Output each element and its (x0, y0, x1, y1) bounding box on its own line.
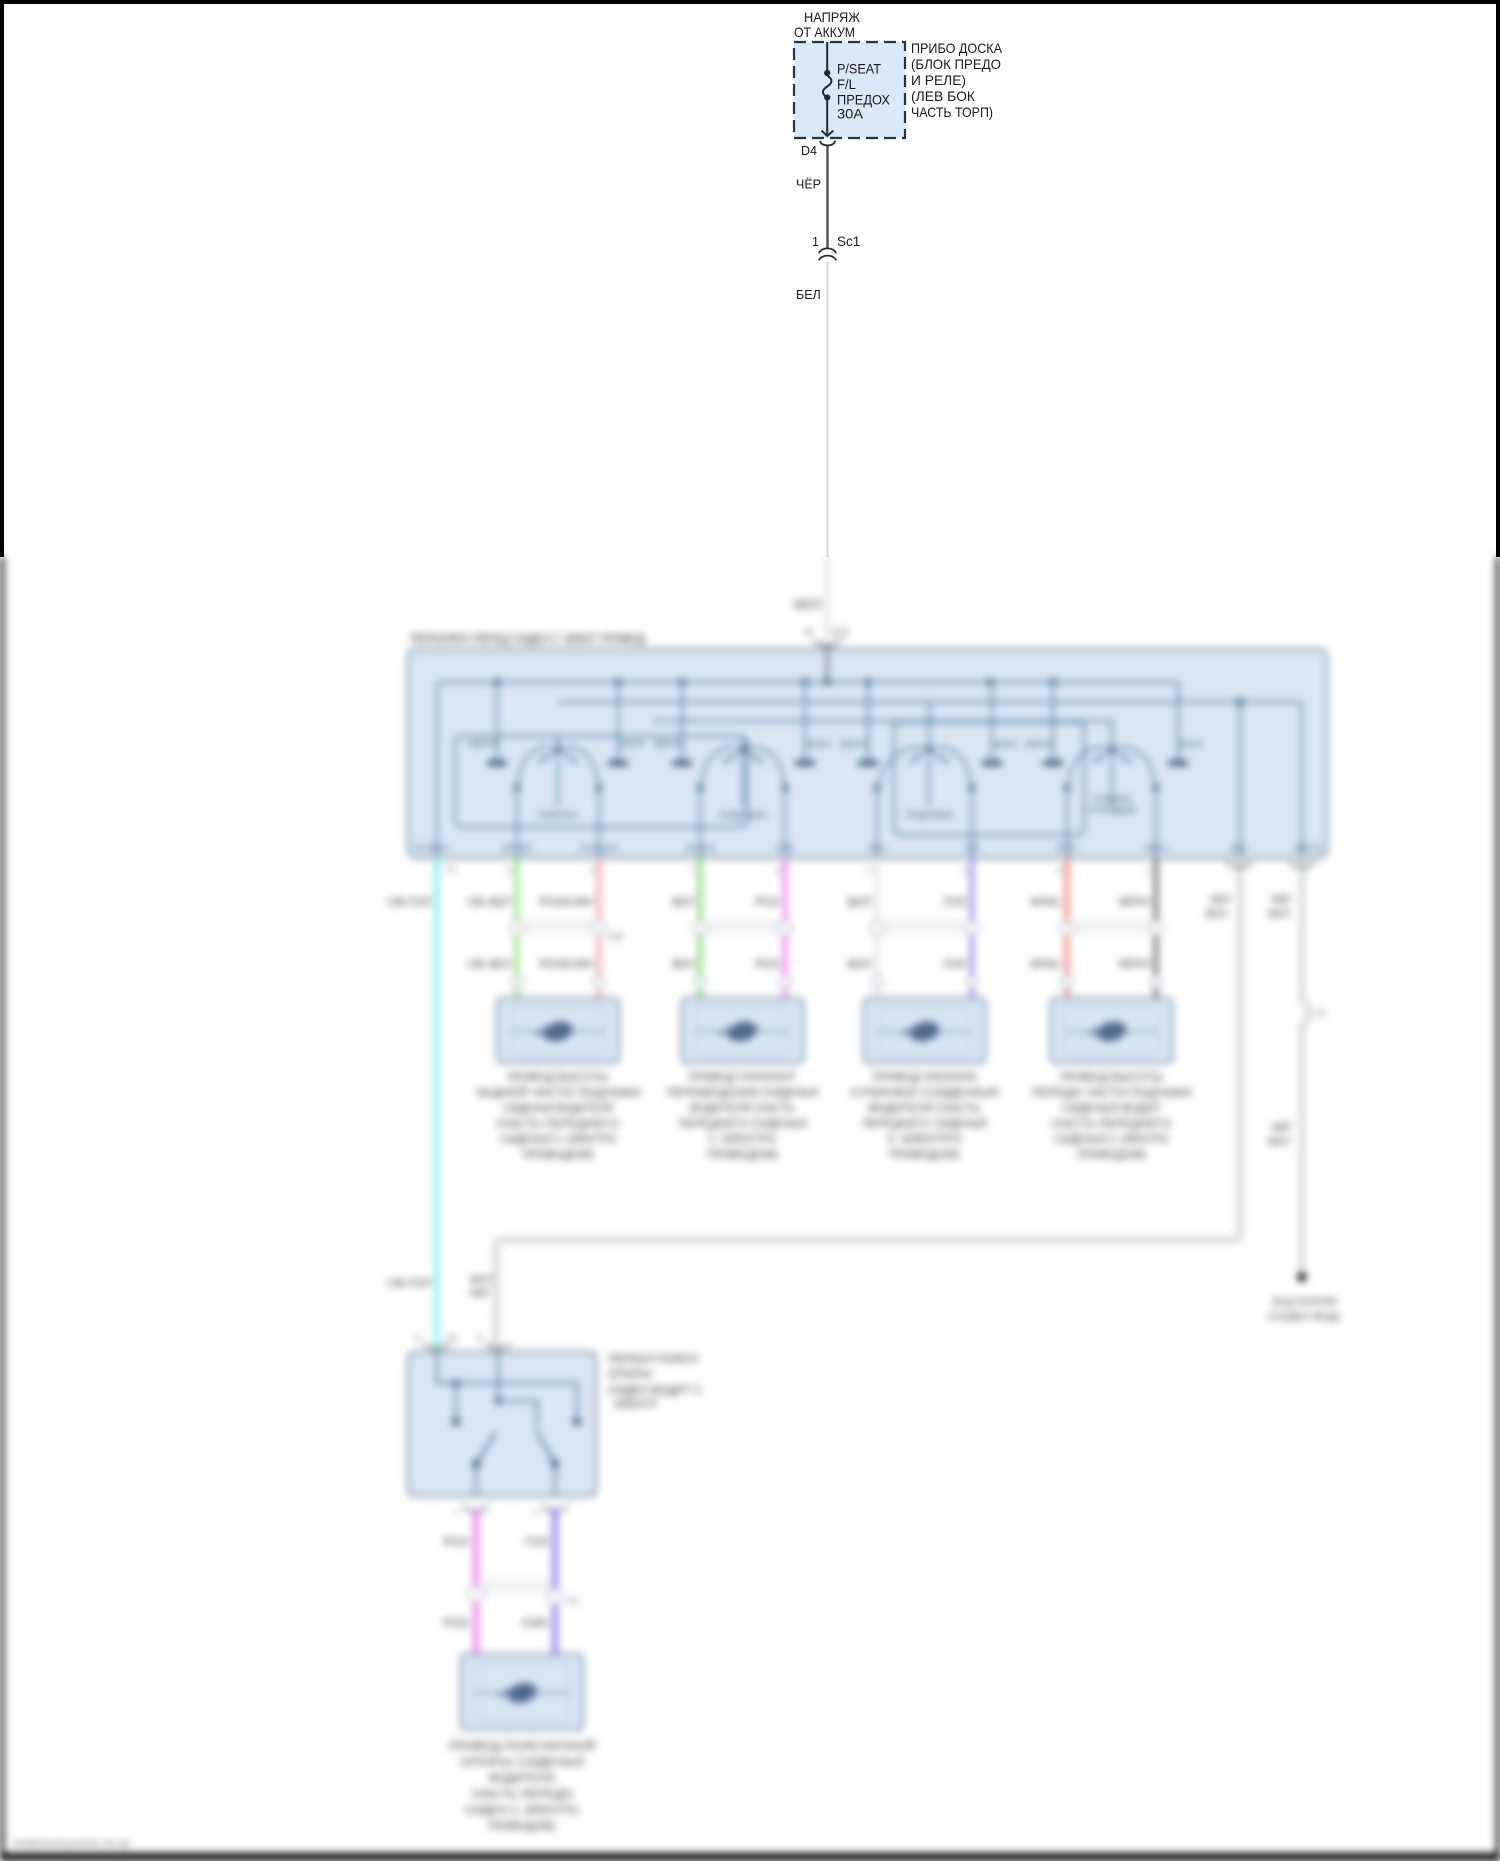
svg-text:НАКЛОН: НАКЛОН (538, 810, 577, 821)
svg-text:C1: C1 (568, 1596, 580, 1606)
svg-text:СВ-ГОЛ: СВ-ГОЛ (387, 895, 431, 909)
svg-text:ПОДУШКА: ПОДУШКА (719, 810, 767, 821)
svg-text:4: 4 (805, 625, 812, 639)
svg-text:ПРИВОДОМ): ПРИВОДОМ) (707, 1150, 778, 1162)
svg-text:F/L: F/L (837, 76, 856, 92)
svg-text:ЧЁР: ЧЁР (796, 178, 821, 192)
svg-text:ПОДУШКА: ПОДУШКА (905, 810, 953, 821)
svg-text:РОЗ/СИН: РОЗ/СИН (539, 957, 593, 971)
svg-text:ПРИВОД ПОЯСНИЧНОЙ: ПРИВОД ПОЯСНИЧНОЙ (449, 1740, 596, 1753)
svg-text:ОПОРЫ СИДЕНЬЯ: ОПОРЫ СИДЕНЬЯ (460, 1757, 584, 1769)
svg-text:1: 1 (1147, 867, 1152, 876)
svg-text:ВОДИТЕЛЯ (ЧАСТЬ: ВОДИТЕЛЯ (ЧАСТЬ (690, 1103, 795, 1115)
svg-text:ЧАСТЬ ТОРП): ЧАСТЬ ТОРП) (911, 104, 993, 120)
svg-text:БЕЛ: БЕЛ (470, 1274, 492, 1286)
svg-text:РОЗ: РОЗ (755, 957, 779, 971)
svg-text:КРАС: КРАС (1056, 843, 1078, 853)
svg-text:ПЕРЕДН ЧАСТИ ПОДУШКИ: ПЕРЕДН ЧАСТИ ПОДУШКИ (1032, 1088, 1192, 1100)
svg-text:ПРИВОД ВЫСОТЫ: ПРИВОД ВЫСОТЫ (508, 1072, 609, 1084)
svg-text:3: 3 (534, 1508, 539, 1517)
svg-text:(ЧАСТЬ ПЕРЕДНЕГО: (ЧАСТЬ ПЕРЕДНЕГО (1052, 1119, 1172, 1131)
svg-text:ГОЛ: ГОЛ (943, 957, 966, 971)
svg-text:БЕЛ: БЕЛ (1205, 908, 1227, 920)
svg-text:ВОДИТЕЛЯ (ЧАСТЬ: ВОДИТЕЛЯ (ЧАСТЬ (869, 1103, 981, 1115)
svg-text:8: 8 (508, 867, 513, 876)
svg-text:ВНИЗ: ВНИЗ (807, 739, 830, 749)
svg-text:ЧЁРН: ЧЁРН (1144, 843, 1167, 853)
svg-text:ПЕРЕКЛЮЧ ПЕРЕД СИДЕН С ЭЛЕКТ П: ПЕРЕКЛЮЧ ПЕРЕД СИДЕН С ЭЛЕКТ ПРИВОД (410, 631, 645, 646)
svg-text:troubleshootmyvehicle.com д5: troubleshootmyvehicle.com д5 (12, 1838, 130, 1850)
svg-text:C2: C2 (414, 843, 425, 853)
svg-text:РОЗ/СИН: РОЗ/СИН (580, 843, 618, 853)
svg-text:ВВЕРХ: ВВЕРХ (840, 739, 868, 749)
svg-text:ВВЕРХ: ВВЕРХ (1025, 739, 1053, 749)
svg-text:СПИНКА: СПИНКА (1092, 794, 1132, 805)
svg-text:СВ-ГОЛ: СВ-ГОЛ (387, 1276, 431, 1290)
svg-text:ПРИБО ДОСКА: ПРИБО ДОСКА (911, 40, 1003, 56)
svg-text:СИДЕНЬЯ ВОДИТ: СИДЕНЬЯ ВОДИТ (1062, 1103, 1162, 1115)
svg-text:ОПОРЫ: ОПОРЫ (608, 1369, 652, 1381)
svg-text:ЗЕЛ: ЗЕЛ (671, 957, 694, 971)
svg-text:30A: 30A (837, 106, 864, 122)
svg-text:5: 5 (868, 867, 873, 876)
svg-text:ПРИВОД ГОРИЗОНТ: ПРИВОД ГОРИЗОНТ (689, 1072, 797, 1084)
svg-text:РОЗ: РОЗ (776, 843, 793, 853)
svg-text:ПЕРЕДНЕГО СИДЕНЬЯ: ПЕРЕДНЕГО СИДЕНЬЯ (862, 1119, 987, 1131)
svg-text:БЕЛ: БЕЛ (796, 288, 821, 302)
svg-text:ЧЁР: ЧЁР (1270, 894, 1292, 906)
svg-text:СВ-ЗЕЛ: СВ-ЗЕЛ (467, 957, 511, 971)
svg-text:ГОЛ: ГОЛ (964, 843, 980, 853)
svg-text:РОЗ: РОЗ (755, 895, 779, 909)
svg-text:C2: C2 (1312, 843, 1323, 853)
svg-text:БЕЛ: БЕЛ (847, 957, 871, 971)
svg-text:СВ-ЗЕЛ: СВ-ЗЕЛ (501, 843, 532, 853)
svg-text:(СИДЕН ВОД): (СИДЕН ВОД) (1268, 1311, 1340, 1323)
svg-text:1: 1 (455, 1508, 460, 1517)
svg-text:Sc1: Sc1 (837, 234, 860, 249)
svg-text:ПЕРЕКЛ ПОЯСН: ПЕРЕКЛ ПОЯСН (608, 1354, 699, 1366)
svg-text:1: 1 (812, 235, 819, 249)
svg-text:БЕЛ: БЕЛ (1268, 1136, 1290, 1148)
svg-text:БЕЛ: БЕЛ (794, 597, 821, 612)
svg-text:РОЗ/СИН: РОЗ/СИН (539, 895, 593, 909)
svg-text:ЧЁР: ЧЁР (1293, 843, 1310, 853)
svg-text:ПРИВОД ВЫСОТЫ: ПРИВОД ВЫСОТЫ (1060, 1072, 1163, 1084)
svg-text:C1: C1 (833, 625, 849, 639)
svg-text:C2: C2 (446, 865, 457, 874)
svg-text:СИДЕНЬЯ ВОДИТЕЛЯ: СИДЕНЬЯ ВОДИТЕЛЯ (503, 1103, 613, 1115)
svg-text:ВОДИТЕЛЯ: ВОДИТЕЛЯ (489, 1773, 555, 1785)
svg-text:С ЭЛЕКТРО: С ЭЛЕКТРО (887, 1134, 962, 1146)
svg-text:ПРИВОДОМ): ПРИВОДОМ) (1077, 1150, 1146, 1162)
svg-text:СИДЕНЬЯ С ЭЛЕКТРО: СИДЕНЬЯ С ЭЛЕКТРО (1054, 1134, 1169, 1146)
svg-text:ПЕРЕМЕЩЕНИЯ СИДЕНЬЯ: ПЕРЕМЕЩЕНИЯ СИДЕНЬЯ (667, 1088, 819, 1100)
svg-text:ЗАД ЗАЖИМ: ЗАД ЗАЖИМ (1271, 1296, 1337, 1308)
svg-text:ПРИВОДОМ): ПРИВОДОМ) (523, 1150, 594, 1162)
svg-text:4: 4 (963, 867, 968, 876)
svg-text:4: 4 (476, 1333, 481, 1343)
svg-text:НАПРЯЖ: НАПРЯЖ (804, 9, 860, 25)
svg-text:ВНИЗ: ВНИЗ (620, 739, 643, 749)
svg-text:ЧЁР: ЧЁР (1209, 894, 1231, 906)
svg-text:ЗАДНЕЙ ЧАСТИ ПОДУШКИ: ЗАДНЕЙ ЧАСТИ ПОДУШКИ (476, 1087, 641, 1100)
svg-text:(ЛЕВ БОК: (ЛЕВ БОК (911, 88, 976, 104)
svg-text:ЗЕЛ: ЗЕЛ (671, 895, 694, 909)
svg-text:СИН: СИН (522, 1616, 548, 1630)
svg-text:ЧЁР: ЧЁР (468, 1288, 490, 1300)
svg-text:РОЗ: РОЗ (444, 1616, 468, 1630)
svg-text:ПРИВОДОМ): ПРИВОДОМ) (489, 1821, 556, 1833)
svg-text:ПРИВОДОМ): ПРИВОДОМ) (890, 1150, 960, 1162)
svg-text:ЧЁРН: ЧЁРН (425, 843, 448, 853)
svg-text:СИДЕНЬЯ С ЭЛЕКТРО: СИДЕНЬЯ С ЭЛЕКТРО (500, 1134, 617, 1146)
svg-text:ОТКИДЫВ: ОТКИДЫВ (1089, 805, 1136, 816)
svg-text:P/SEAT: P/SEAT (837, 61, 881, 77)
svg-text:ВНИЗ: ВНИЗ (1180, 739, 1203, 749)
svg-text:КРАС: КРАС (1030, 957, 1061, 971)
svg-text:СИДЕН С ЭЛЕКТРО: СИДЕН С ЭЛЕКТРО (465, 1805, 579, 1817)
svg-text:C2: C2 (1315, 1008, 1327, 1018)
svg-text:ЧЁРН: ЧЁРН (1117, 957, 1150, 971)
svg-text:ВВЕРХ: ВВЕРХ (654, 739, 682, 749)
svg-text:ПРИВОД НАКЛОНА: ПРИВОД НАКЛОНА (872, 1072, 977, 1084)
svg-text:ГОЛ: ГОЛ (525, 1535, 548, 1549)
svg-text:ОТ АККУМ: ОТ АККУМ (794, 24, 855, 40)
svg-text:(БЛОК ПРЕДО: (БЛОК ПРЕДО (911, 56, 1001, 72)
svg-text:3: 3 (590, 867, 595, 876)
svg-text:ВВЕРХ: ВВЕРХ (469, 739, 497, 749)
svg-text:D4: D4 (801, 144, 817, 158)
svg-text:БЕЛ: БЕЛ (1231, 843, 1248, 853)
svg-text:БЕЛ: БЕЛ (869, 843, 886, 853)
svg-text:9: 9 (1058, 867, 1063, 876)
svg-text:6: 6 (415, 1333, 420, 1343)
svg-text:СИДЕН ВОДИТ С: СИДЕН ВОДИТ С (608, 1385, 702, 1397)
svg-text:ЧЁРН: ЧЁРН (1117, 895, 1150, 909)
svg-text:РОЗ: РОЗ (444, 1535, 468, 1549)
svg-text:СВ-ЗЕЛ: СВ-ЗЕЛ (467, 895, 511, 909)
svg-text:7: 7 (691, 867, 696, 876)
svg-text:СВ-ЗЕЛ: СВ-ЗЕЛ (684, 843, 715, 853)
svg-text:БЕЛ: БЕЛ (1268, 908, 1290, 920)
svg-text:И РЕЛЕ): И РЕЛЕ) (911, 72, 966, 88)
svg-text:(ЧАСТЬ ПЕРЕДН: (ЧАСТЬ ПЕРЕДН (472, 1789, 573, 1801)
svg-text:ПЕРЕДНЕГО СИДЕНЬЯ: ПЕРЕДНЕГО СИДЕНЬЯ (679, 1119, 807, 1131)
svg-text:6: 6 (776, 867, 781, 876)
svg-text:C1: C1 (447, 1333, 459, 1343)
svg-text:ЧЁР: ЧЁР (1270, 1122, 1292, 1134)
svg-text:С ЭЛЕКТРО: С ЭЛЕКТРО (709, 1134, 777, 1146)
svg-text:ЭЛЕКТР: ЭЛЕКТР (613, 1399, 658, 1411)
svg-text:БЕЛ: БЕЛ (847, 895, 871, 909)
svg-text:ВНИЗ: ВНИЗ (994, 739, 1017, 749)
svg-text:КРАС: КРАС (1030, 895, 1061, 909)
svg-text:C2: C2 (609, 931, 623, 943)
svg-text:ГОЛ: ГОЛ (943, 895, 966, 909)
svg-text:(ЧАСТЬ ПЕРЕДНЕГО: (ЧАСТЬ ПЕРЕДНЕГО (497, 1119, 620, 1131)
svg-text:СПИНКИ СИДЕНЬЯ: СПИНКИ СИДЕНЬЯ (851, 1088, 999, 1100)
